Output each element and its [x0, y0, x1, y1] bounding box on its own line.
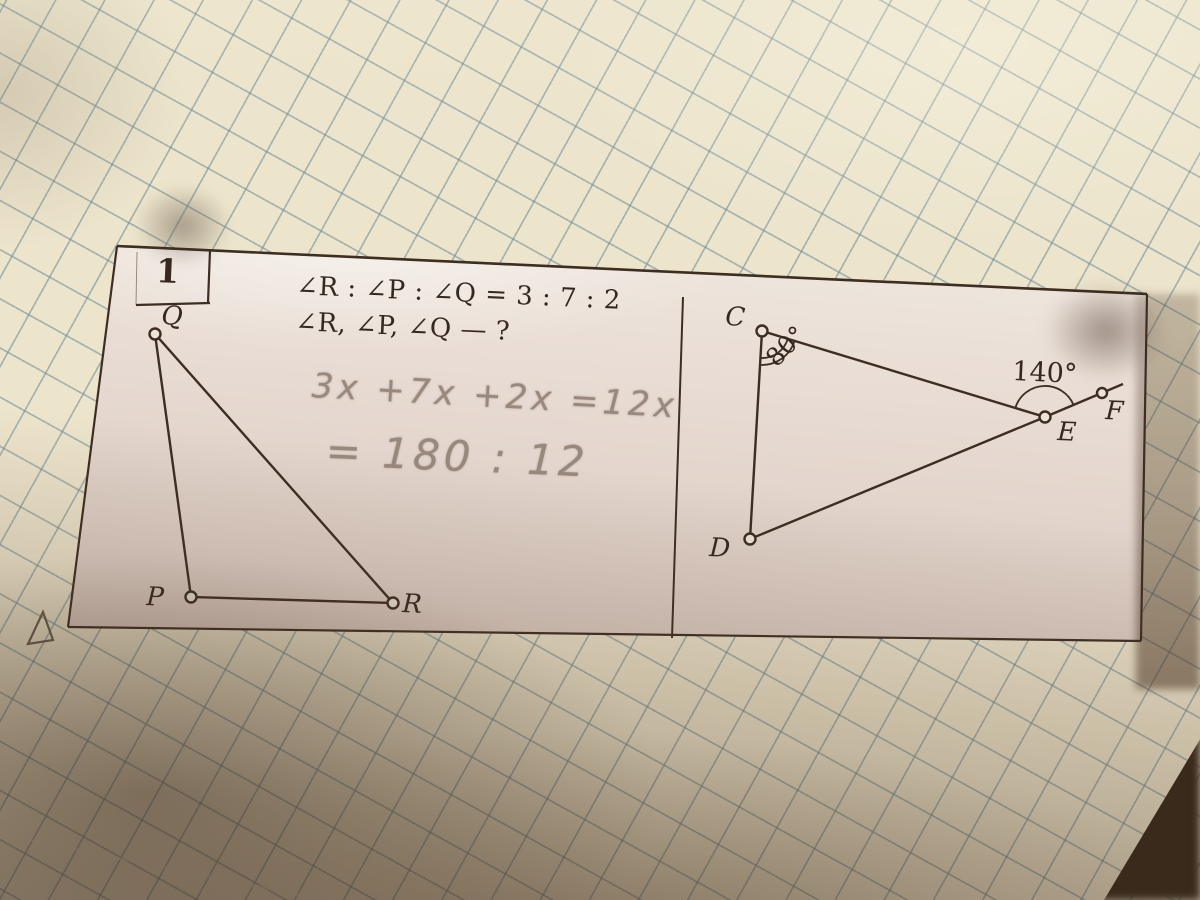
vertex-label-c: C	[725, 302, 746, 333]
vertex-label-r: R	[402, 589, 423, 620]
vertex-label-p: P	[146, 582, 165, 613]
vertex-label-e: E	[1057, 417, 1077, 448]
photo-of-worksheet: 1 ∠R : ∠P : ∠Q = 3 : 7 : 2 ∠R, ∠P, ∠Q — …	[0, 0, 1200, 900]
vertex-label-f: F	[1105, 396, 1124, 427]
vertex-label-q: Q	[161, 301, 184, 332]
task-number: 1	[155, 251, 180, 291]
card-right-edge-shadow	[1136, 294, 1200, 689]
finger-shadow	[118, 170, 248, 282]
vertex-label-d: D	[709, 533, 731, 564]
angle-label-140: 140°	[1012, 356, 1078, 390]
